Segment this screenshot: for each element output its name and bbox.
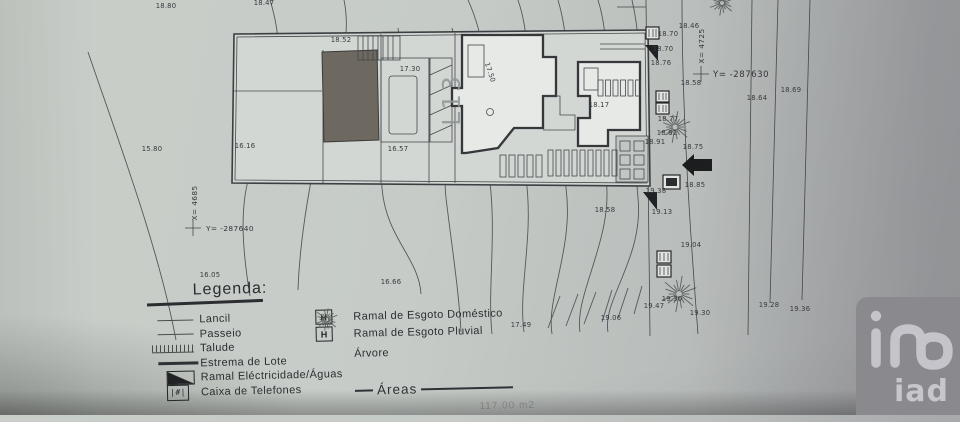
lot-number-label: L13 (437, 74, 466, 126)
spot-elevation-label: 16.05 (200, 271, 220, 279)
areas-heading: Áreas (355, 379, 514, 398)
legend-item-label: Ramal de Esgoto Pluvial (354, 324, 483, 339)
spot-elevation-label: 19.36 (790, 305, 810, 313)
right-station-x-label: X= 4725 (697, 28, 706, 63)
legend-item-label: Caixa de Telefones (201, 384, 302, 398)
spot-elevation-label: 18.58 (681, 79, 701, 87)
spot-elevation-label: 18.58 (595, 206, 615, 214)
spot-elevation-label: 16.16 (235, 142, 255, 150)
passeio-line-icon (148, 334, 200, 336)
spot-elevation-label: 18.64 (747, 94, 767, 102)
legend-title-underline (147, 299, 263, 307)
spot-elevation-label: 16.57 (388, 145, 408, 153)
iad-wordmark: iad (894, 374, 949, 409)
legend-item-label: Lancil (199, 313, 230, 326)
spot-elevation-label: 18.76 (651, 59, 671, 67)
spot-elevation-label: 18.17 (589, 101, 609, 109)
spot-elevation-label: 18.52 (331, 36, 351, 44)
iad-logo-mark-icon (862, 307, 958, 373)
spot-elevation-label: 18.75 (683, 143, 703, 151)
spot-elevation-label: 18.69 (781, 86, 801, 94)
spot-elevation-label: 18.82 (657, 129, 677, 137)
iad-logo: iad (856, 297, 960, 415)
spot-elevation-label: 19.13 (652, 208, 672, 216)
spot-elevation-label: 17.30 (400, 65, 420, 73)
estrema-lote-line-icon (148, 362, 200, 366)
legend-item-label: Estrema de Lote (200, 355, 287, 369)
existing-building-fill (322, 50, 379, 142)
legend-item-label: Passeio (200, 327, 242, 340)
spot-elevation-label: 18.70 (658, 30, 678, 38)
spot-elevation-label: 18.77 (658, 115, 678, 123)
legend-item-label: Árvore (354, 347, 389, 360)
spot-elevation-label: 18.80 (156, 2, 176, 10)
spot-elevation-label: 18.70 (653, 45, 673, 53)
spot-elevation-label: 18.47 (254, 0, 274, 7)
right-station-y-label: Y= -287630 (712, 70, 769, 80)
talude-hatch-icon (148, 345, 200, 354)
left-station-y-label: Y= -287640 (205, 224, 254, 233)
legend-item-label: Talude (200, 342, 235, 355)
legend-item-label: Ramal de Esgoto Doméstico (353, 307, 503, 322)
terrace-area (616, 136, 648, 182)
spot-elevation-label: 19.38 (646, 187, 666, 195)
spot-elevation-label: 18.85 (685, 181, 705, 189)
spot-elevation-label: 18.91 (645, 138, 665, 146)
tree-symbol-icon (315, 308, 337, 330)
areas-value-partial: 117.00 m2 (479, 400, 535, 412)
spot-elevation-label: 15.80 (142, 145, 162, 153)
caixa-telefones-icon: |#| (149, 384, 201, 401)
tree-symbol-icon (710, 0, 734, 16)
lancil-line-icon (147, 319, 199, 321)
left-station-x-label: X= 4685 (190, 185, 199, 220)
legend-panel: Legenda: Lancil Passeio Talude Estrema d… (146, 269, 724, 421)
spot-elevation-label: 18.46 (679, 22, 699, 30)
spot-elevation-label: 19.28 (759, 301, 779, 309)
arvore-tree-icon (316, 353, 354, 354)
spot-elevation-label: 19.04 (681, 241, 701, 249)
